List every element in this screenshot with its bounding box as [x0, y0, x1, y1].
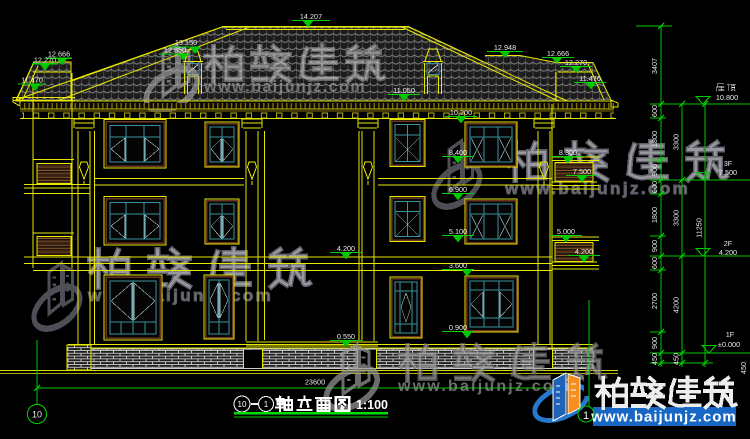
svg-text:1:100: 1:100 [356, 398, 388, 412]
svg-text:23600: 23600 [305, 378, 325, 387]
svg-text:www.baijunjz.com: www.baijunjz.com [397, 378, 571, 395]
svg-text:1F: 1F [726, 330, 735, 339]
svg-text:12.270: 12.270 [34, 56, 56, 65]
svg-text:4.200: 4.200 [575, 247, 593, 256]
svg-text:11.476: 11.476 [579, 74, 601, 83]
svg-text:1: 1 [264, 400, 269, 409]
svg-text:450: 450 [650, 353, 659, 365]
svg-text:900: 900 [650, 164, 659, 176]
svg-text:0.550: 0.550 [337, 332, 355, 341]
svg-text:www.baijunjz.com: www.baijunjz.com [590, 409, 736, 426]
svg-text:4200: 4200 [672, 297, 681, 313]
svg-text:0.900: 0.900 [449, 323, 467, 332]
svg-text:3.600: 3.600 [449, 261, 467, 270]
svg-text:4.200: 4.200 [337, 244, 355, 253]
svg-text:14.207: 14.207 [300, 12, 322, 21]
svg-text:8.400: 8.400 [449, 148, 467, 157]
svg-text:4.200: 4.200 [719, 248, 737, 257]
svg-text:600: 600 [650, 105, 659, 117]
svg-text:1800: 1800 [650, 131, 659, 147]
svg-text:5.100: 5.100 [449, 227, 467, 236]
svg-text:12.666: 12.666 [547, 49, 569, 58]
svg-text:3F: 3F [724, 159, 733, 168]
svg-text:2700: 2700 [650, 293, 659, 309]
svg-text:11250: 11250 [695, 218, 704, 238]
svg-text:5.000: 5.000 [557, 227, 575, 236]
svg-text:3300: 3300 [672, 134, 681, 150]
svg-text:6.900: 6.900 [449, 185, 467, 194]
svg-text:12.270: 12.270 [565, 58, 587, 67]
svg-text:3300: 3300 [672, 210, 681, 226]
svg-text:450: 450 [739, 362, 748, 374]
svg-text:10: 10 [238, 400, 247, 409]
svg-text:10: 10 [32, 410, 42, 420]
svg-text:10.200: 10.200 [450, 108, 472, 117]
svg-text:900: 900 [650, 337, 659, 349]
svg-text:600: 600 [650, 181, 659, 193]
svg-text:±0.000: ±0.000 [718, 340, 740, 349]
svg-text:11.050: 11.050 [393, 86, 415, 95]
svg-text:900: 900 [650, 240, 659, 252]
svg-text:1800: 1800 [650, 207, 659, 223]
svg-text:11.470: 11.470 [21, 76, 43, 85]
svg-text:12.948: 12.948 [494, 43, 516, 52]
svg-text:12.850: 12.850 [164, 46, 186, 55]
svg-text:10.800: 10.800 [716, 93, 738, 102]
svg-text:600: 600 [650, 257, 659, 269]
svg-text:7.500: 7.500 [573, 167, 591, 176]
svg-text:8.300: 8.300 [559, 148, 577, 157]
svg-text:450: 450 [672, 353, 681, 365]
svg-text:3407: 3407 [650, 58, 659, 74]
svg-text:www.baijunjz.com: www.baijunjz.com [203, 79, 366, 96]
svg-text:2F: 2F [724, 239, 733, 248]
svg-text:7.500: 7.500 [719, 168, 737, 177]
svg-text:1: 1 [583, 410, 589, 422]
